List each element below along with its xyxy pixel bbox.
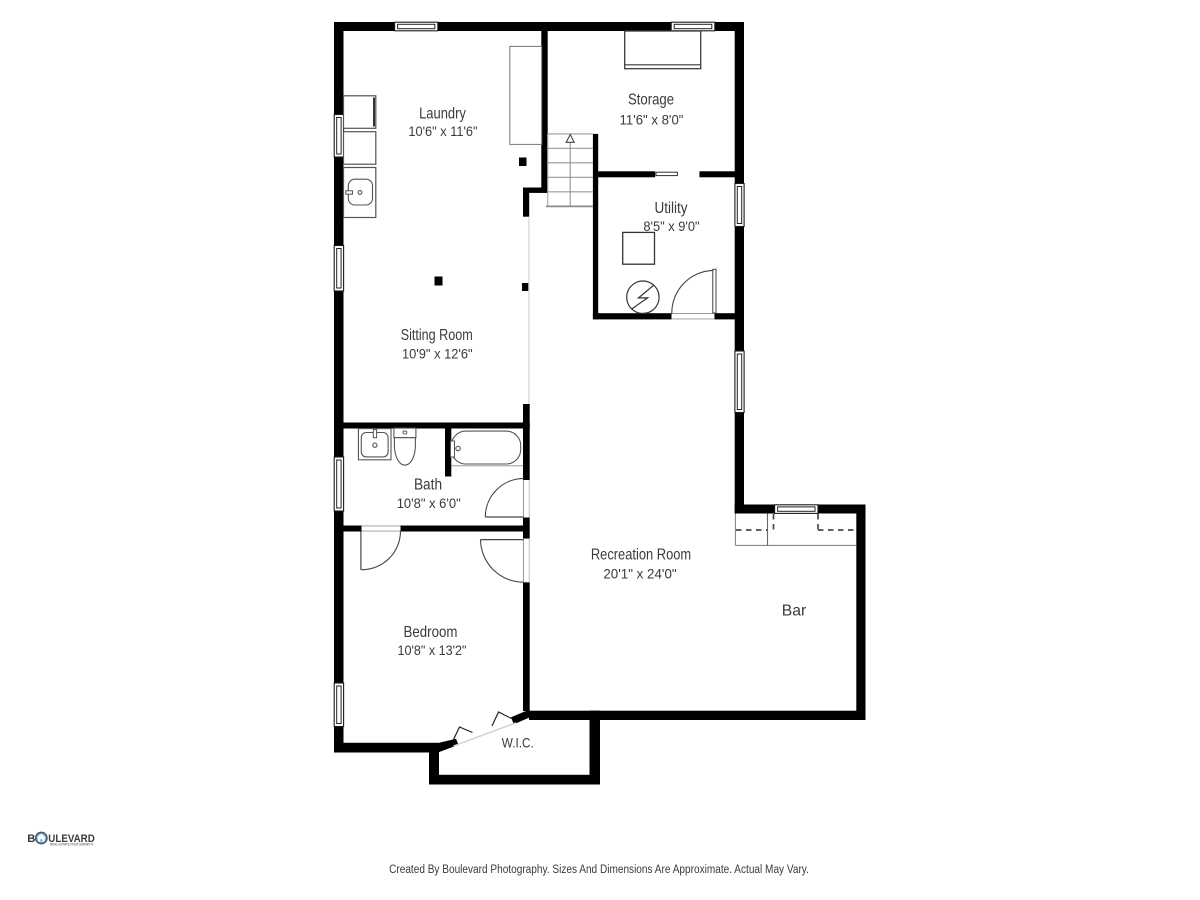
svg-text:Bath: Bath [414,476,442,493]
svg-text:Utility: Utility [655,200,688,217]
svg-text:Laundry: Laundry [419,106,466,123]
svg-text:8'5" x 9'0": 8'5" x 9'0" [643,219,699,234]
svg-text:Storage: Storage [628,92,674,109]
svg-text:10'8" x 6'0": 10'8" x 6'0" [397,496,461,511]
svg-text:11'6" x 8'0": 11'6" x 8'0" [620,113,684,128]
svg-text:Bar: Bar [782,603,807,620]
svg-text:Recreation Room: Recreation Room [591,546,691,563]
svg-text:REAL ESTATE PHOTOGRAPHY: REAL ESTATE PHOTOGRAPHY [50,842,94,846]
svg-text:20'1" x 24'0": 20'1" x 24'0" [603,567,676,582]
svg-text:Bedroom: Bedroom [404,624,458,641]
svg-text:10'9" x 12'6": 10'9" x 12'6" [402,347,473,362]
svg-text:W.I.C.: W.I.C. [502,734,534,750]
svg-text:B: B [27,833,35,845]
svg-text:10'8" x 13'2": 10'8" x 13'2" [398,643,467,658]
svg-text:10'6" x 11'6": 10'6" x 11'6" [408,124,477,139]
svg-text:Sitting Room: Sitting Room [401,327,473,344]
svg-text:Created By Boulevard Photograp: Created By Boulevard Photography. Sizes … [389,864,809,876]
